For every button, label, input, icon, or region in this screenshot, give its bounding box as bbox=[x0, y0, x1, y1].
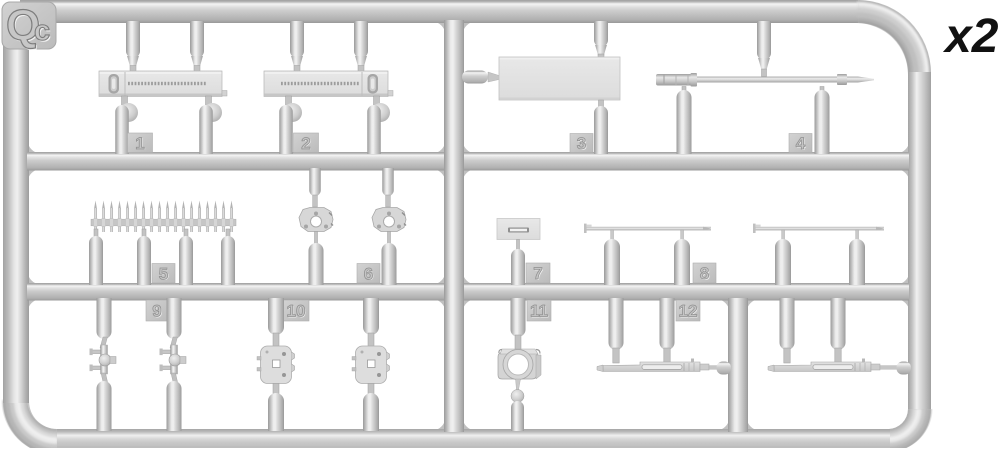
svg-text:12: 12 bbox=[679, 302, 698, 321]
svg-text:7: 7 bbox=[533, 264, 542, 283]
svg-text:8: 8 bbox=[700, 264, 709, 283]
svg-text:9: 9 bbox=[152, 302, 161, 321]
svg-text:11: 11 bbox=[530, 302, 548, 321]
svg-text:10: 10 bbox=[287, 302, 306, 321]
svg-text:x2: x2 bbox=[942, 10, 999, 63]
svg-text:2: 2 bbox=[301, 134, 310, 153]
svg-text:5: 5 bbox=[159, 264, 168, 283]
svg-text:6: 6 bbox=[364, 264, 373, 283]
svg-text:c: c bbox=[34, 15, 50, 47]
svg-text:3: 3 bbox=[577, 134, 586, 153]
svg-text:1: 1 bbox=[135, 134, 144, 153]
svg-text:4: 4 bbox=[796, 134, 806, 153]
